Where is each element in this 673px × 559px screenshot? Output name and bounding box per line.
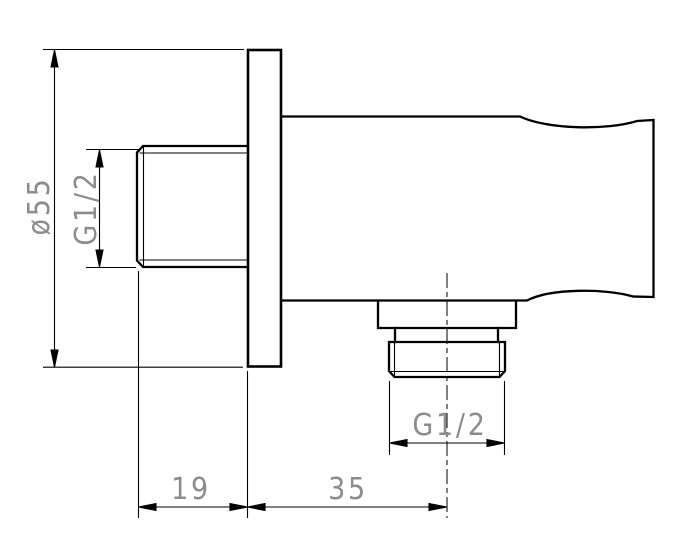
arrowhead-right [230, 504, 248, 511]
arrowhead-up [96, 150, 103, 167]
dim-label-inlet-projection: 19 [171, 475, 211, 505]
arrowhead-left [390, 440, 408, 447]
arrowhead-up [51, 50, 58, 67]
arrowhead-right [429, 504, 447, 511]
arrowhead-right [487, 440, 505, 447]
arrowhead-down [51, 350, 58, 367]
part-outline [137, 50, 654, 377]
bracket-body [282, 117, 654, 301]
inlet-thread-root-lines [140, 147, 247, 266]
dim-label-plate-to-outlet-axis: 35 [328, 475, 368, 505]
inlet-thread-fitting [137, 146, 247, 267]
arrowhead-left [248, 504, 266, 511]
dim-label-inlet-thread: G1/2 [72, 170, 102, 245]
technical-drawing-canvas: ø55 G1/2 19 35 G1/2 [0, 0, 673, 559]
arrowhead-down [96, 250, 103, 267]
wall-plate [248, 50, 281, 367]
arrowhead-left [139, 504, 157, 511]
dim-label-plate-diameter: ø55 [25, 177, 55, 236]
dim-label-outlet-thread: G1/2 [412, 411, 487, 441]
